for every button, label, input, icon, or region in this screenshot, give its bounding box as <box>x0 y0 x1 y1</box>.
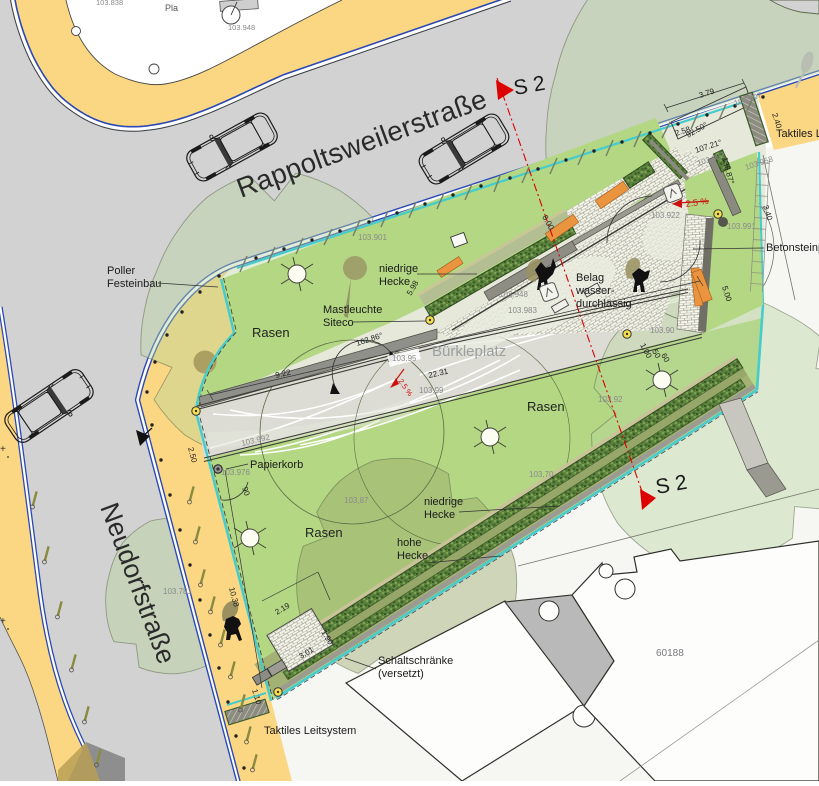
svg-text:Betonsteinp: Betonsteinp <box>766 242 819 254</box>
svg-text:103.90: 103.90 <box>650 326 675 335</box>
svg-text:+: + <box>0 616 6 627</box>
svg-text:103.838: 103.838 <box>96 0 123 7</box>
svg-text:Hecke: Hecke <box>379 276 410 288</box>
svg-text:niedrige: niedrige <box>379 263 418 275</box>
svg-text:103.781: 103.781 <box>163 587 192 596</box>
svg-text:Taktiles Leitsystem: Taktiles Leitsystem <box>264 725 356 737</box>
svg-text:Belag: Belag <box>576 272 604 284</box>
svg-text:Mastleuchte: Mastleuchte <box>323 304 382 316</box>
svg-text:hohe: hohe <box>397 537 421 549</box>
svg-text:103.948: 103.948 <box>499 290 528 299</box>
svg-text:103.991: 103.991 <box>727 222 756 231</box>
svg-text:niedrige: niedrige <box>424 496 463 508</box>
svg-text:Rasen: Rasen <box>527 399 565 414</box>
svg-text:Hecke: Hecke <box>397 550 428 562</box>
svg-text:+: + <box>0 444 6 455</box>
svg-text:Hecke: Hecke <box>424 509 455 521</box>
svg-text:103.948: 103.948 <box>228 23 255 32</box>
svg-text:103.983: 103.983 <box>508 306 537 315</box>
svg-text:103.92: 103.92 <box>598 395 623 404</box>
svg-text:Rasen: Rasen <box>305 525 343 540</box>
svg-text:(versetzt): (versetzt) <box>378 668 424 680</box>
svg-text:Pla: Pla <box>165 3 178 13</box>
svg-text:103.976: 103.976 <box>221 468 250 477</box>
svg-text:103.95: 103.95 <box>392 354 417 363</box>
svg-text:Papierkorb: Papierkorb <box>250 459 303 471</box>
svg-text:Festeinbau: Festeinbau <box>107 278 161 290</box>
svg-text:103.922: 103.922 <box>651 211 680 220</box>
svg-text:103,70: 103,70 <box>529 470 554 479</box>
svg-text:Poller: Poller <box>107 265 135 277</box>
svg-text:103.99: 103.99 <box>419 386 444 395</box>
svg-text:103.901: 103.901 <box>358 233 387 242</box>
svg-text:Schaltschränke: Schaltschränke <box>378 655 453 667</box>
svg-text:durchlässig: durchlässig <box>576 298 632 310</box>
svg-text:Rasen: Rasen <box>252 325 290 340</box>
svg-text:Bürkleplatz: Bürkleplatz <box>432 343 506 360</box>
svg-text:60188: 60188 <box>656 648 684 659</box>
svg-text:103,87: 103,87 <box>344 496 369 505</box>
svg-text:Siteco: Siteco <box>323 317 354 329</box>
svg-text:wasser-: wasser- <box>575 285 615 297</box>
svg-text:Taktiles Le: Taktiles Le <box>776 128 819 140</box>
